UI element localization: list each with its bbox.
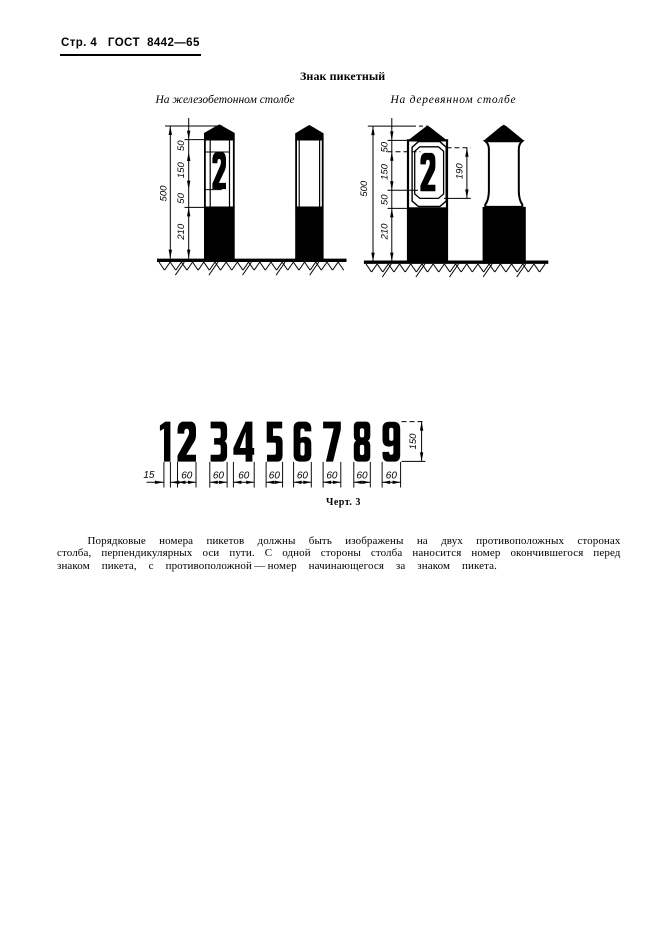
svg-text:500: 500: [359, 180, 370, 197]
svg-text:150: 150: [176, 162, 187, 179]
svg-text:15: 15: [143, 470, 155, 481]
svg-text:60: 60: [181, 471, 193, 482]
svg-text:210: 210: [176, 223, 187, 241]
svg-text:60: 60: [297, 471, 309, 482]
svg-text:50: 50: [176, 192, 187, 203]
svg-text:500: 500: [159, 185, 170, 202]
svg-text:150: 150: [408, 433, 419, 450]
svg-text:50: 50: [379, 194, 390, 205]
svg-text:60: 60: [213, 471, 225, 482]
svg-text:60: 60: [326, 471, 338, 482]
svg-text:60: 60: [269, 471, 281, 482]
svg-text:60: 60: [356, 471, 368, 482]
svg-text:150: 150: [379, 163, 390, 180]
svg-text:60: 60: [238, 471, 250, 482]
svg-text:50: 50: [176, 140, 187, 151]
svg-text:210: 210: [379, 223, 390, 241]
svg-text:50: 50: [379, 141, 390, 152]
svg-text:190: 190: [454, 163, 465, 180]
svg-text:60: 60: [386, 471, 398, 482]
